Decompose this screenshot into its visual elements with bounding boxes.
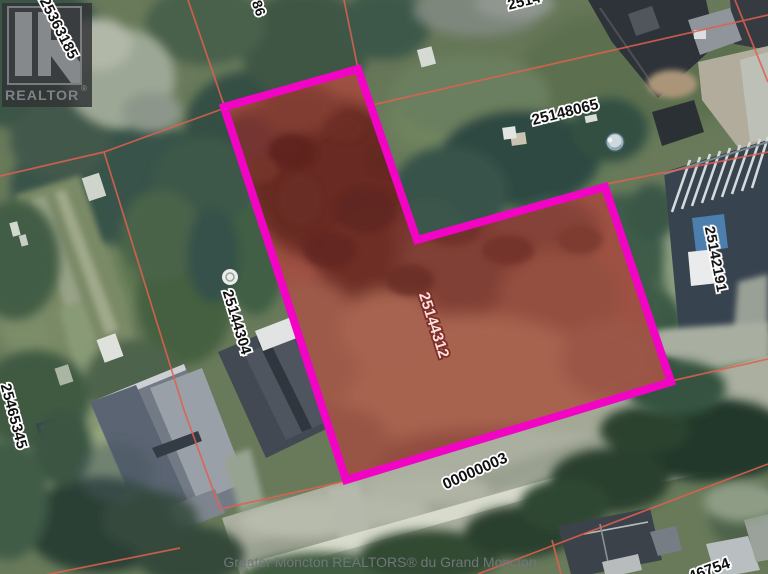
svg-text:Greater Moncton REALTORS® du G: Greater Moncton REALTORS® du Grand Monct… [223, 554, 536, 570]
svg-text:®: ® [81, 84, 87, 93]
svg-text:REALTOR: REALTOR [5, 88, 79, 104]
